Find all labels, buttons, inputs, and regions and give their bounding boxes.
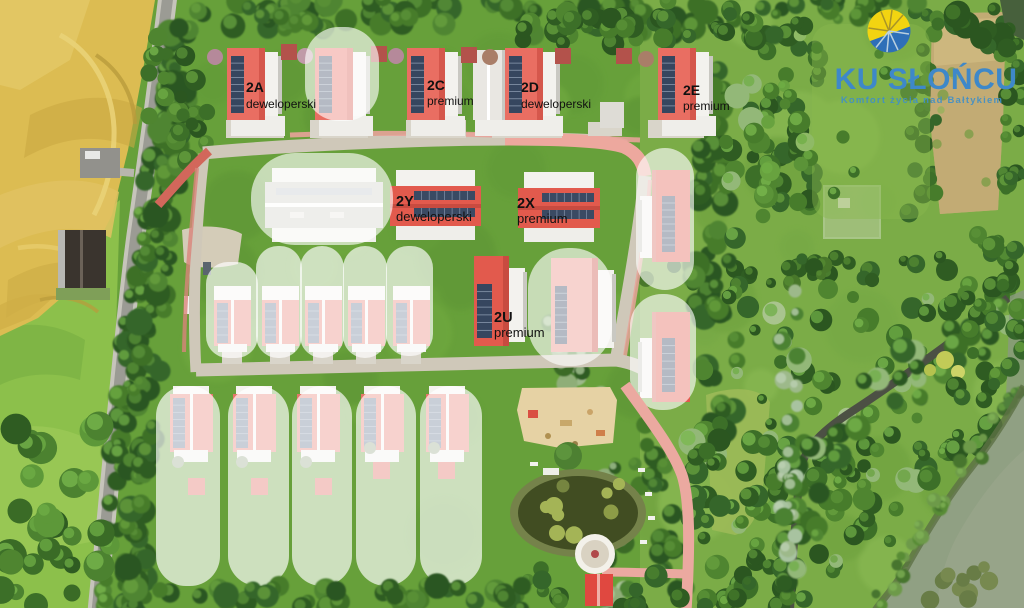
svg-text:2Y: 2Y: [396, 194, 414, 210]
svg-text:deweloperski: deweloperski: [521, 97, 591, 111]
svg-text:2C: 2C: [427, 77, 445, 93]
svg-text:KU SŁOŃCU: KU SŁOŃCU: [835, 62, 1018, 96]
svg-text:2A: 2A: [246, 79, 264, 95]
svg-text:2E: 2E: [683, 82, 700, 98]
svg-text:premium: premium: [517, 211, 568, 226]
svg-text:premium: premium: [427, 94, 474, 108]
svg-text:Komfort życia nad Bałtykiem: Komfort życia nad Bałtykiem: [841, 95, 1003, 106]
svg-text:premium: premium: [683, 99, 730, 113]
svg-text:premium: premium: [494, 325, 545, 340]
svg-text:2U: 2U: [494, 310, 513, 326]
svg-text:deweloperski: deweloperski: [246, 97, 316, 111]
svg-text:2X: 2X: [517, 196, 535, 212]
svg-text:2D: 2D: [521, 79, 539, 95]
svg-text:deweloperski: deweloperski: [396, 209, 472, 224]
